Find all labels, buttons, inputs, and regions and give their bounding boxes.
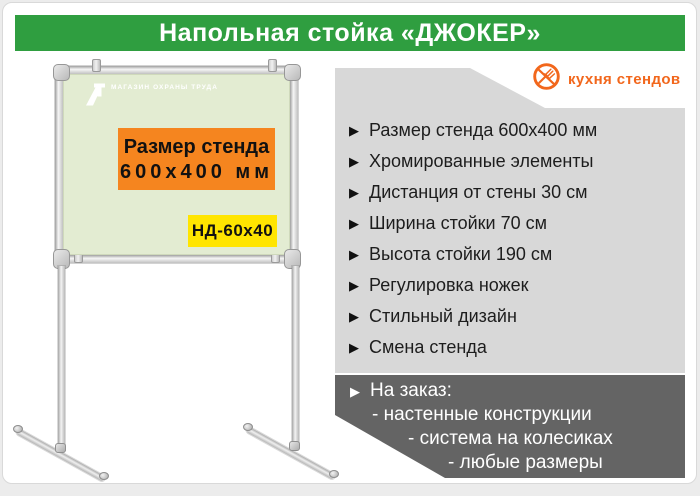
feature-label: Ширина стойки 70 см bbox=[369, 213, 547, 234]
list-item: ▶ Стильный дизайн bbox=[349, 301, 597, 332]
foot-cap bbox=[243, 423, 253, 431]
size-label-line1: Размер стенда bbox=[118, 136, 275, 159]
list-item: ▶ Регулировка ножек bbox=[349, 270, 597, 301]
frame-left-tube bbox=[55, 70, 63, 260]
model-badge: НД-60х40 bbox=[188, 215, 277, 247]
feature-label: Регулировка ножек bbox=[369, 275, 529, 296]
list-item: ▶ Ширина стойки 70 см bbox=[349, 208, 597, 239]
list-item: ▶ Размер стенда 600х400 мм bbox=[349, 115, 597, 146]
bullet-triangle-icon: ▶ bbox=[349, 186, 359, 199]
order-option: - система на колесиках bbox=[408, 428, 613, 450]
feature-label: Дистанция от стены 30 см bbox=[369, 182, 588, 203]
order-option: - любые размеры bbox=[448, 452, 603, 474]
order-title-row: ▶ На заказ: bbox=[350, 380, 452, 402]
feature-label: Высота стойки 190 см bbox=[369, 244, 552, 265]
brand-logo: кухня стендов bbox=[532, 64, 681, 94]
leg-foot-joint bbox=[55, 443, 66, 453]
bullet-triangle-icon: ▶ bbox=[349, 155, 359, 168]
shop-logo: МАГАЗИН ОХРАНЫ ТРУДА bbox=[85, 81, 218, 113]
bullet-triangle-icon: ▶ bbox=[349, 217, 359, 230]
order-title: На заказ: bbox=[370, 380, 452, 402]
features-panel: ▶ Размер стенда 600х400 мм ▶ Хромированн… bbox=[335, 68, 685, 373]
bullet-triangle-icon: ▶ bbox=[349, 341, 359, 354]
frame-right-tube bbox=[290, 70, 298, 260]
shop-logo-text: МАГАЗИН ОХРАНЫ ТРУДА bbox=[111, 84, 218, 91]
size-label-line2: 600х400 мм bbox=[118, 161, 275, 184]
order-option: - настенные конструкции bbox=[372, 404, 592, 426]
feature-label: Хромированные элементы bbox=[369, 151, 594, 172]
board-clip bbox=[92, 59, 101, 72]
list-item: ▶ Смена стенда bbox=[349, 332, 597, 363]
frame-corner bbox=[53, 64, 70, 81]
foot-cap bbox=[329, 470, 339, 478]
stand-leg-right bbox=[292, 266, 299, 448]
foot-cap bbox=[99, 472, 109, 480]
leg-foot-joint bbox=[289, 441, 300, 451]
mot-logo-icon bbox=[85, 81, 106, 113]
list-item: ▶ Высота стойки 190 см bbox=[349, 239, 597, 270]
frame-corner bbox=[284, 64, 301, 81]
bullet-triangle-icon: ▶ bbox=[349, 248, 359, 261]
list-item: ▶ Хромированные элементы bbox=[349, 146, 597, 177]
bullet-triangle-icon: ▶ bbox=[350, 385, 360, 398]
frame-bottom-tube bbox=[59, 255, 294, 263]
feature-label: Смена стенда bbox=[369, 337, 487, 358]
board-clip bbox=[268, 59, 277, 72]
page-title: Напольная стойка «ДЖОКЕР» bbox=[15, 15, 685, 51]
stand-size-label: Размер стенда 600х400 мм bbox=[118, 128, 275, 190]
bullet-triangle-icon: ▶ bbox=[349, 124, 359, 137]
bullet-triangle-icon: ▶ bbox=[349, 310, 359, 323]
feature-label: Стильный дизайн bbox=[369, 306, 517, 327]
bullet-triangle-icon: ▶ bbox=[349, 279, 359, 292]
brand-name: кухня стендов bbox=[568, 71, 681, 88]
list-item: ▶ Дистанция от стены 30 см bbox=[349, 177, 597, 208]
foot-cap bbox=[13, 425, 23, 433]
stand-leg-left bbox=[58, 266, 65, 450]
crossed-fork-icon bbox=[532, 62, 561, 96]
feature-label: Размер стенда 600х400 мм bbox=[369, 120, 597, 141]
ad-banner: Напольная стойка «ДЖОКЕР» кухня стендов bbox=[0, 0, 700, 496]
features-list: ▶ Размер стенда 600х400 мм ▶ Хромированн… bbox=[349, 115, 597, 363]
